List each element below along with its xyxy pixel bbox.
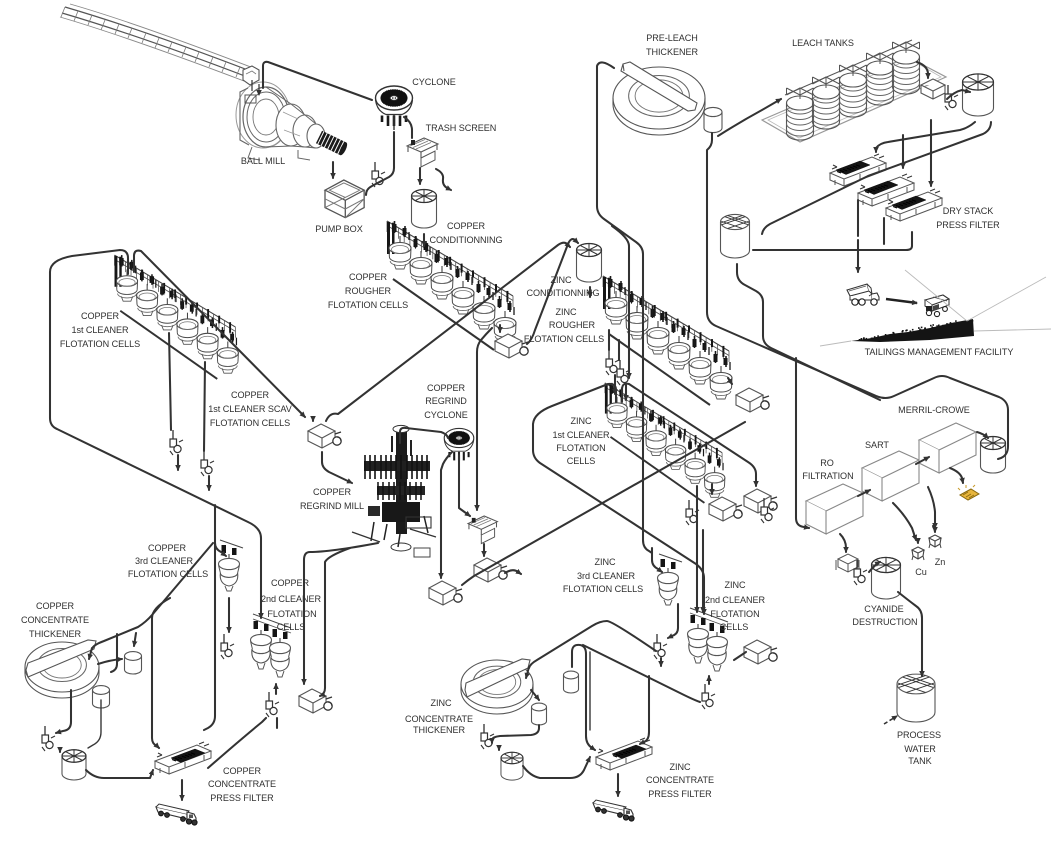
svg-text:COPPER: COPPER [231, 390, 270, 400]
svg-text:ZINC: ZINC [594, 557, 615, 567]
svg-text:FLOTATION: FLOTATION [267, 609, 316, 619]
svg-text:FLOTATION CELLS: FLOTATION CELLS [210, 418, 290, 428]
svg-text:COPPER: COPPER [427, 383, 466, 393]
svg-text:FLOTATION CELLS: FLOTATION CELLS [563, 584, 643, 594]
svg-text:TANK: TANK [908, 756, 931, 766]
svg-text:TAILINGS MANAGEMENT FACILITY: TAILINGS MANAGEMENT FACILITY [865, 347, 1014, 357]
svg-text:REGRIND MILL: REGRIND MILL [300, 501, 364, 511]
svg-text:CELLS: CELLS [567, 456, 596, 466]
svg-text:Cu: Cu [915, 567, 927, 577]
svg-text:CONCENTRATE: CONCENTRATE [646, 775, 714, 785]
svg-text:COPPER: COPPER [447, 221, 486, 231]
svg-text:CELLS: CELLS [277, 622, 306, 632]
svg-text:PRESS FILTER: PRESS FILTER [210, 793, 274, 803]
svg-text:ZINC: ZINC [555, 307, 576, 317]
svg-text:RO: RO [820, 458, 834, 468]
svg-text:CYCLONE: CYCLONE [424, 410, 468, 420]
svg-text:REGRIND: REGRIND [425, 396, 467, 406]
svg-text:PRESS FILTER: PRESS FILTER [648, 789, 712, 799]
svg-text:FLOTATION CELLS: FLOTATION CELLS [60, 339, 140, 349]
svg-text:CONCENTRATE: CONCENTRATE [405, 714, 473, 724]
svg-text:ROUGHER: ROUGHER [549, 320, 596, 330]
svg-text:PROCESS: PROCESS [897, 730, 941, 740]
svg-text:CELLS: CELLS [720, 622, 749, 632]
svg-text:THICKENER: THICKENER [29, 629, 82, 639]
svg-text:PRE-LEACH: PRE-LEACH [646, 33, 698, 43]
svg-text:FLOTATION CELLS: FLOTATION CELLS [524, 334, 604, 344]
svg-text:THICKENER: THICKENER [413, 725, 466, 735]
svg-text:WATER: WATER [904, 744, 936, 754]
svg-text:FLOTATION: FLOTATION [556, 443, 605, 453]
svg-text:COPPER: COPPER [81, 311, 120, 321]
svg-text:ZINC: ZINC [430, 698, 451, 708]
svg-text:SART: SART [865, 440, 889, 450]
svg-text:COPPER: COPPER [36, 601, 75, 611]
svg-text:3rd CLEANER: 3rd CLEANER [135, 556, 194, 566]
svg-text:CONDITIONNING: CONDITIONNING [526, 288, 599, 298]
svg-text:ZINC: ZINC [724, 580, 745, 590]
svg-text:FILTRATION: FILTRATION [802, 471, 853, 481]
svg-text:ROUGHER: ROUGHER [345, 286, 392, 296]
svg-text:FLOTATION: FLOTATION [710, 609, 759, 619]
svg-text:COPPER: COPPER [313, 487, 352, 497]
svg-text:2nd CLEANER: 2nd CLEANER [261, 594, 322, 604]
svg-text:1st CLEANER: 1st CLEANER [71, 325, 129, 335]
svg-text:ZINC: ZINC [669, 762, 690, 772]
svg-text:CYCLONE: CYCLONE [412, 77, 456, 87]
svg-text:3rd CLEANER: 3rd CLEANER [577, 571, 636, 581]
svg-text:CONDITIONNING: CONDITIONNING [429, 235, 502, 245]
svg-text:COPPER: COPPER [223, 766, 262, 776]
svg-text:DRY STACK: DRY STACK [943, 206, 994, 216]
svg-text:FLOTATION CELLS: FLOTATION CELLS [328, 300, 408, 310]
svg-text:COPPER: COPPER [349, 272, 388, 282]
svg-text:CYANIDE: CYANIDE [864, 604, 903, 614]
svg-text:CONCENTRATE: CONCENTRATE [21, 615, 89, 625]
svg-text:1st CLEANER: 1st CLEANER [552, 430, 610, 440]
svg-text:2nd CLEANER: 2nd CLEANER [705, 595, 766, 605]
svg-text:Zn: Zn [935, 557, 946, 567]
svg-text:CONCENTRATE: CONCENTRATE [208, 779, 276, 789]
svg-text:DESTRUCTION: DESTRUCTION [852, 617, 917, 627]
svg-text:BALL MILL: BALL MILL [241, 156, 285, 166]
svg-text:1st CLEANER SCAV: 1st CLEANER SCAV [208, 404, 292, 414]
svg-text:ZINC: ZINC [550, 275, 571, 285]
svg-text:FLOTATION CELLS: FLOTATION CELLS [128, 569, 208, 579]
svg-text:PRESS FILTER: PRESS FILTER [936, 220, 1000, 230]
svg-text:ZINC: ZINC [570, 416, 591, 426]
svg-text:LEACH TANKS: LEACH TANKS [792, 38, 854, 48]
svg-text:THICKENER: THICKENER [646, 47, 699, 57]
svg-text:COPPER: COPPER [148, 543, 187, 553]
svg-text:PUMP BOX: PUMP BOX [315, 224, 362, 234]
svg-text:MERRIL-CROWE: MERRIL-CROWE [898, 405, 970, 415]
svg-text:COPPER: COPPER [271, 578, 310, 588]
svg-text:TRASH SCREEN: TRASH SCREEN [426, 123, 497, 133]
